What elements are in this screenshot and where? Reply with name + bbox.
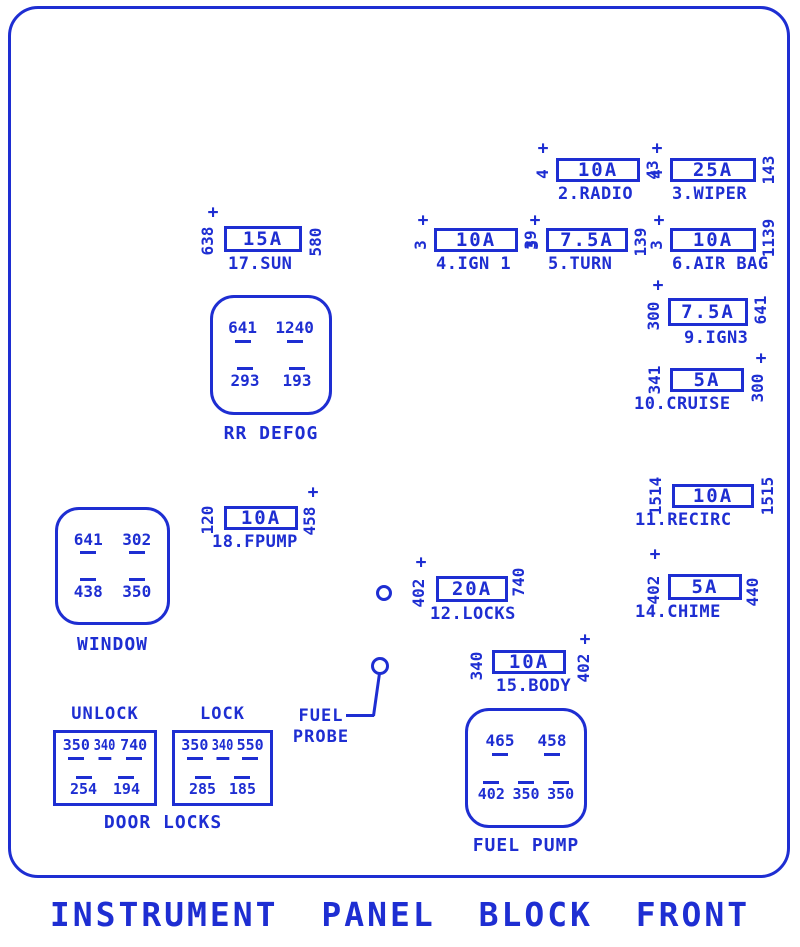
pin-dash	[237, 367, 253, 370]
pin-dash	[287, 340, 303, 343]
relay-pin: 550	[237, 738, 264, 760]
relay-pin: 185	[229, 776, 256, 798]
diagram-title: INSTRUMENT PANEL BLOCK FRONT	[0, 895, 800, 934]
lock-label: LOCK	[172, 704, 273, 724]
relay-pin: 641	[74, 532, 103, 555]
wire-number-right: 641	[753, 296, 769, 325]
relay-rr-defog-label: RR DEFOG	[210, 423, 332, 444]
relay-pin: 740	[120, 738, 147, 760]
plus-mark: +	[418, 212, 429, 230]
plus-mark: +	[756, 350, 767, 368]
fuse-label: 17.SUN	[228, 254, 292, 274]
fuse-box: 20A	[436, 576, 508, 602]
wire-number-left: 4	[535, 169, 551, 179]
fuse-label: 2.RADIO	[558, 184, 633, 204]
fuse-label: 18.FPUMP	[212, 532, 298, 552]
plus-mark: +	[650, 546, 661, 564]
fuse-4-ign1: + 3 10A 39 4.IGN 1	[434, 228, 518, 252]
fuse-label: 11.RECIRC	[635, 510, 732, 530]
door-lock-lock-box: 350 340 550 285 185	[172, 730, 273, 806]
fuel-probe-label: FUEL PROBE	[292, 706, 350, 749]
pin-dash	[80, 551, 96, 554]
pin-dash	[242, 757, 258, 760]
fuse-label: 14.CHIME	[635, 602, 721, 622]
wire-number-right: 402	[576, 654, 592, 683]
fuse-amp-rating: 25A	[693, 159, 733, 181]
wire-number-right: 1515	[760, 477, 776, 516]
pin-dash	[289, 367, 305, 370]
relay-pin: 340	[212, 738, 234, 760]
pin-dash	[216, 757, 229, 760]
pin-dash	[68, 757, 84, 760]
relay-pin: 302	[122, 532, 151, 555]
plus-mark: +	[530, 212, 541, 230]
wire-number-right: 440	[745, 578, 761, 607]
test-point-circle	[376, 585, 392, 601]
fuel-probe-leader-horizontal	[346, 714, 374, 717]
relay-pin: 465	[486, 733, 515, 756]
relay-pin: 438	[74, 578, 103, 601]
wire-number-left: 402	[411, 579, 427, 608]
fuse-amp-rating: 10A	[578, 159, 618, 181]
relay-pin: 194	[113, 776, 140, 798]
fuse-box: 7.5A	[668, 298, 748, 326]
wire-number-right: 300	[750, 374, 766, 403]
plus-mark: +	[416, 554, 427, 572]
pin-dash	[483, 781, 499, 784]
fuse-amp-rating: 10A	[509, 651, 549, 673]
fuse-amp-rating: 5A	[692, 576, 719, 598]
fuse-box: 10A	[224, 506, 298, 530]
fuse-box: 10A	[492, 650, 566, 674]
fuse-amp-rating: 7.5A	[681, 301, 735, 323]
fuse-box: 10A	[672, 484, 754, 508]
pin-dash	[544, 753, 560, 756]
fuse-label: 6.AIR BAG	[672, 254, 769, 274]
relay-window: 641 302 438 350	[55, 507, 170, 625]
wire-number-right: 580	[308, 228, 324, 257]
wire-number-right: 458	[302, 507, 318, 536]
fuse-3-wiper: + 4 25A 143 3.WIPER	[670, 158, 756, 182]
plus-mark: +	[580, 631, 591, 649]
fuse-amp-rating: 10A	[241, 507, 281, 529]
fuse-label: 3.WIPER	[672, 184, 747, 204]
pin-dash	[492, 753, 508, 756]
relay-fuel-pump-label: FUEL PUMP	[465, 835, 587, 856]
pin-dash	[235, 340, 251, 343]
fuel-probe-circle	[371, 657, 389, 675]
pin-dash	[129, 551, 145, 554]
fuse-amp-rating: 10A	[693, 485, 733, 507]
fuse-box: 10A	[434, 228, 518, 252]
fuse-box: 25A	[670, 158, 756, 182]
fuse-amp-rating: 15A	[243, 228, 283, 250]
relay-pin: 340	[94, 738, 116, 760]
relay-pin: 350	[63, 738, 90, 760]
wire-number-left: 3	[413, 240, 429, 250]
fuse-6-air-bag: + 3 10A 1139 6.AIR BAG	[670, 228, 756, 252]
fuse-2-radio: + 4 10A 43 2.RADIO	[556, 158, 640, 182]
wire-number-left: 3	[649, 240, 665, 250]
wire-number-left: 120	[200, 506, 216, 535]
fuse-box: 15A	[224, 226, 302, 252]
fuse-box: 5A	[670, 368, 744, 392]
fuse-amp-rating: 20A	[452, 578, 492, 600]
fuse-5-turn: + 3 7.5A 139 5.TURN	[546, 228, 628, 252]
fuse-label: 10.CRUISE	[634, 394, 731, 414]
fuse-amp-rating: 5A	[694, 369, 721, 391]
relay-rr-defog: 641 1240 293 193	[210, 295, 332, 415]
fuse-label: 12.LOCKS	[430, 604, 516, 624]
pin-dash	[518, 781, 534, 784]
wire-number-left: 341	[647, 366, 663, 395]
door-locks-label: DOOR LOCKS	[53, 812, 273, 833]
fuse-18-fpump: 120 10A + 458 18.FPUMP	[224, 506, 298, 530]
relay-pin: 641	[228, 320, 257, 343]
fuse-17-sun: + 638 15A 580 17.SUN	[224, 226, 302, 252]
wire-number-right: 1139	[761, 219, 777, 258]
relay-pin: 285	[189, 776, 216, 798]
plus-mark: +	[654, 212, 665, 230]
fuse-9-ign3: + 300 7.5A 641 9.IGN3	[668, 298, 748, 326]
pin-dash	[553, 781, 569, 784]
fuse-10-cruise: 341 5A + 300 10.CRUISE	[670, 368, 744, 392]
relay-pin: 1240	[275, 320, 314, 343]
wire-number-right: 740	[511, 568, 527, 597]
fuse-box: 7.5A	[546, 228, 628, 252]
wire-number-left: 402	[646, 576, 662, 605]
pin-dash	[118, 776, 134, 779]
relay-pin: 458	[538, 733, 567, 756]
fuse-label: 5.TURN	[548, 254, 612, 274]
relay-pin: 350	[181, 738, 208, 760]
pin-dash	[234, 776, 250, 779]
wire-number-left: 340	[469, 652, 485, 681]
fuse-amp-rating: 10A	[693, 229, 733, 251]
pin-dash	[129, 578, 145, 581]
fuse-label: 9.IGN3	[684, 328, 748, 348]
relay-pin: 193	[283, 367, 312, 390]
plus-mark: +	[308, 484, 319, 502]
fuse-amp-rating: 7.5A	[560, 229, 614, 251]
relay-fuel-pump: 465 458 402 350 350	[465, 708, 587, 828]
plus-mark: +	[653, 277, 664, 295]
fuse-box: 10A	[556, 158, 640, 182]
relay-pin: 254	[70, 776, 97, 798]
wire-number-left: 638	[200, 227, 216, 256]
pin-dash	[80, 578, 96, 581]
wire-number-left: 300	[646, 302, 662, 331]
door-lock-unlock-box: 350 340 740 254 194	[53, 730, 157, 806]
relay-pin: 293	[231, 367, 260, 390]
wire-number-left: 4	[649, 169, 665, 179]
relay-pin: 402	[478, 781, 505, 803]
pin-dash	[99, 757, 112, 760]
fuse-diagram: + 4 10A 43 2.RADIO + 4 25A 143 3.WIPER +…	[0, 0, 800, 947]
plus-mark: +	[652, 140, 663, 158]
plus-mark: +	[208, 204, 219, 222]
fuse-label: 15.BODY	[496, 676, 571, 696]
fuse-14-chime: + 402 5A 440 14.CHIME	[668, 574, 742, 600]
relay-pin: 350	[512, 781, 539, 803]
wire-number-left: 3	[525, 240, 541, 250]
pin-dash	[126, 757, 142, 760]
plus-mark: +	[538, 140, 549, 158]
relay-window-label: WINDOW	[55, 634, 170, 655]
fuse-box: 5A	[668, 574, 742, 600]
fuse-15-body: 340 10A + 402 15.BODY	[492, 650, 566, 674]
fuse-box: 10A	[670, 228, 756, 252]
unlock-label: UNLOCK	[53, 704, 157, 724]
pin-dash	[76, 776, 92, 779]
fuse-amp-rating: 10A	[456, 229, 496, 251]
fuse-11-recirc: 1514 10A 1515 11.RECIRC	[672, 484, 754, 508]
fuse-label: 4.IGN 1	[436, 254, 511, 274]
relay-pin: 350	[547, 781, 574, 803]
pin-dash	[187, 757, 203, 760]
fuse-12-locks: + 402 20A 740 12.LOCKS	[436, 576, 508, 602]
pin-dash	[195, 776, 211, 779]
wire-number-right: 143	[761, 156, 777, 185]
relay-pin: 350	[122, 578, 151, 601]
